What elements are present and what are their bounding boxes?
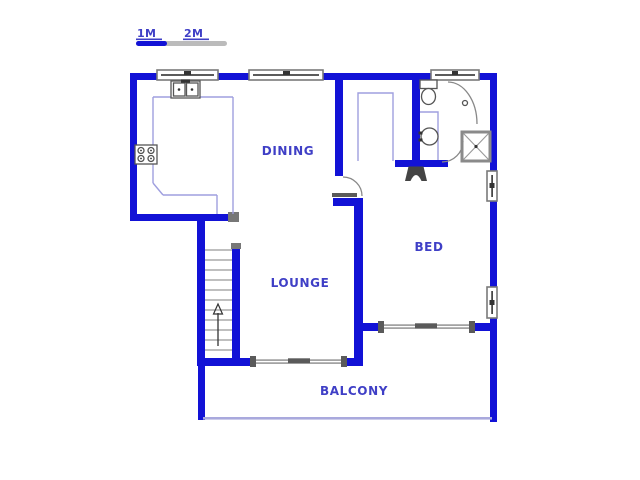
closet-outline <box>358 93 393 161</box>
toilet <box>420 80 437 105</box>
lounge-sliding-door <box>250 356 347 367</box>
window-kitchen <box>157 70 218 80</box>
wall-end-cap <box>231 243 241 249</box>
bed-sliding-door <box>378 321 475 333</box>
double-sink <box>171 80 200 99</box>
floor-plan-drawing: 1M 2M <box>0 0 640 480</box>
scale-1m-underline <box>136 39 162 41</box>
scale-bar-blue-segment <box>136 41 167 46</box>
kitchen-counter <box>153 97 233 214</box>
window-bed-upper <box>487 171 497 201</box>
door-leaf <box>332 193 357 197</box>
window-bed-lower <box>487 287 497 318</box>
room-label-dining: DINING <box>262 144 314 158</box>
room-label-lounge: LOUNGE <box>271 276 330 290</box>
window-dining <box>249 70 323 80</box>
floor-drain <box>463 101 468 106</box>
stove <box>135 145 157 164</box>
scale-1m-label: 1M <box>137 27 156 40</box>
vent-fixture <box>405 167 427 182</box>
staircase <box>205 250 232 350</box>
room-label-balcony: BALCONY <box>320 384 388 398</box>
scale-2m-label: 2M <box>184 27 203 40</box>
room-label-bed: BED <box>414 240 443 254</box>
scale-2m-underline <box>183 39 209 41</box>
door-swing-arc <box>442 141 463 162</box>
balcony-railing <box>203 417 492 420</box>
floor-plan: 1M 2M <box>0 0 640 480</box>
window-bathroom <box>431 70 479 80</box>
dining-door <box>332 177 362 197</box>
shower <box>462 132 490 161</box>
scale-bar: 1M 2M <box>136 27 227 46</box>
bathroom <box>419 80 491 162</box>
wash-basin <box>419 128 439 145</box>
